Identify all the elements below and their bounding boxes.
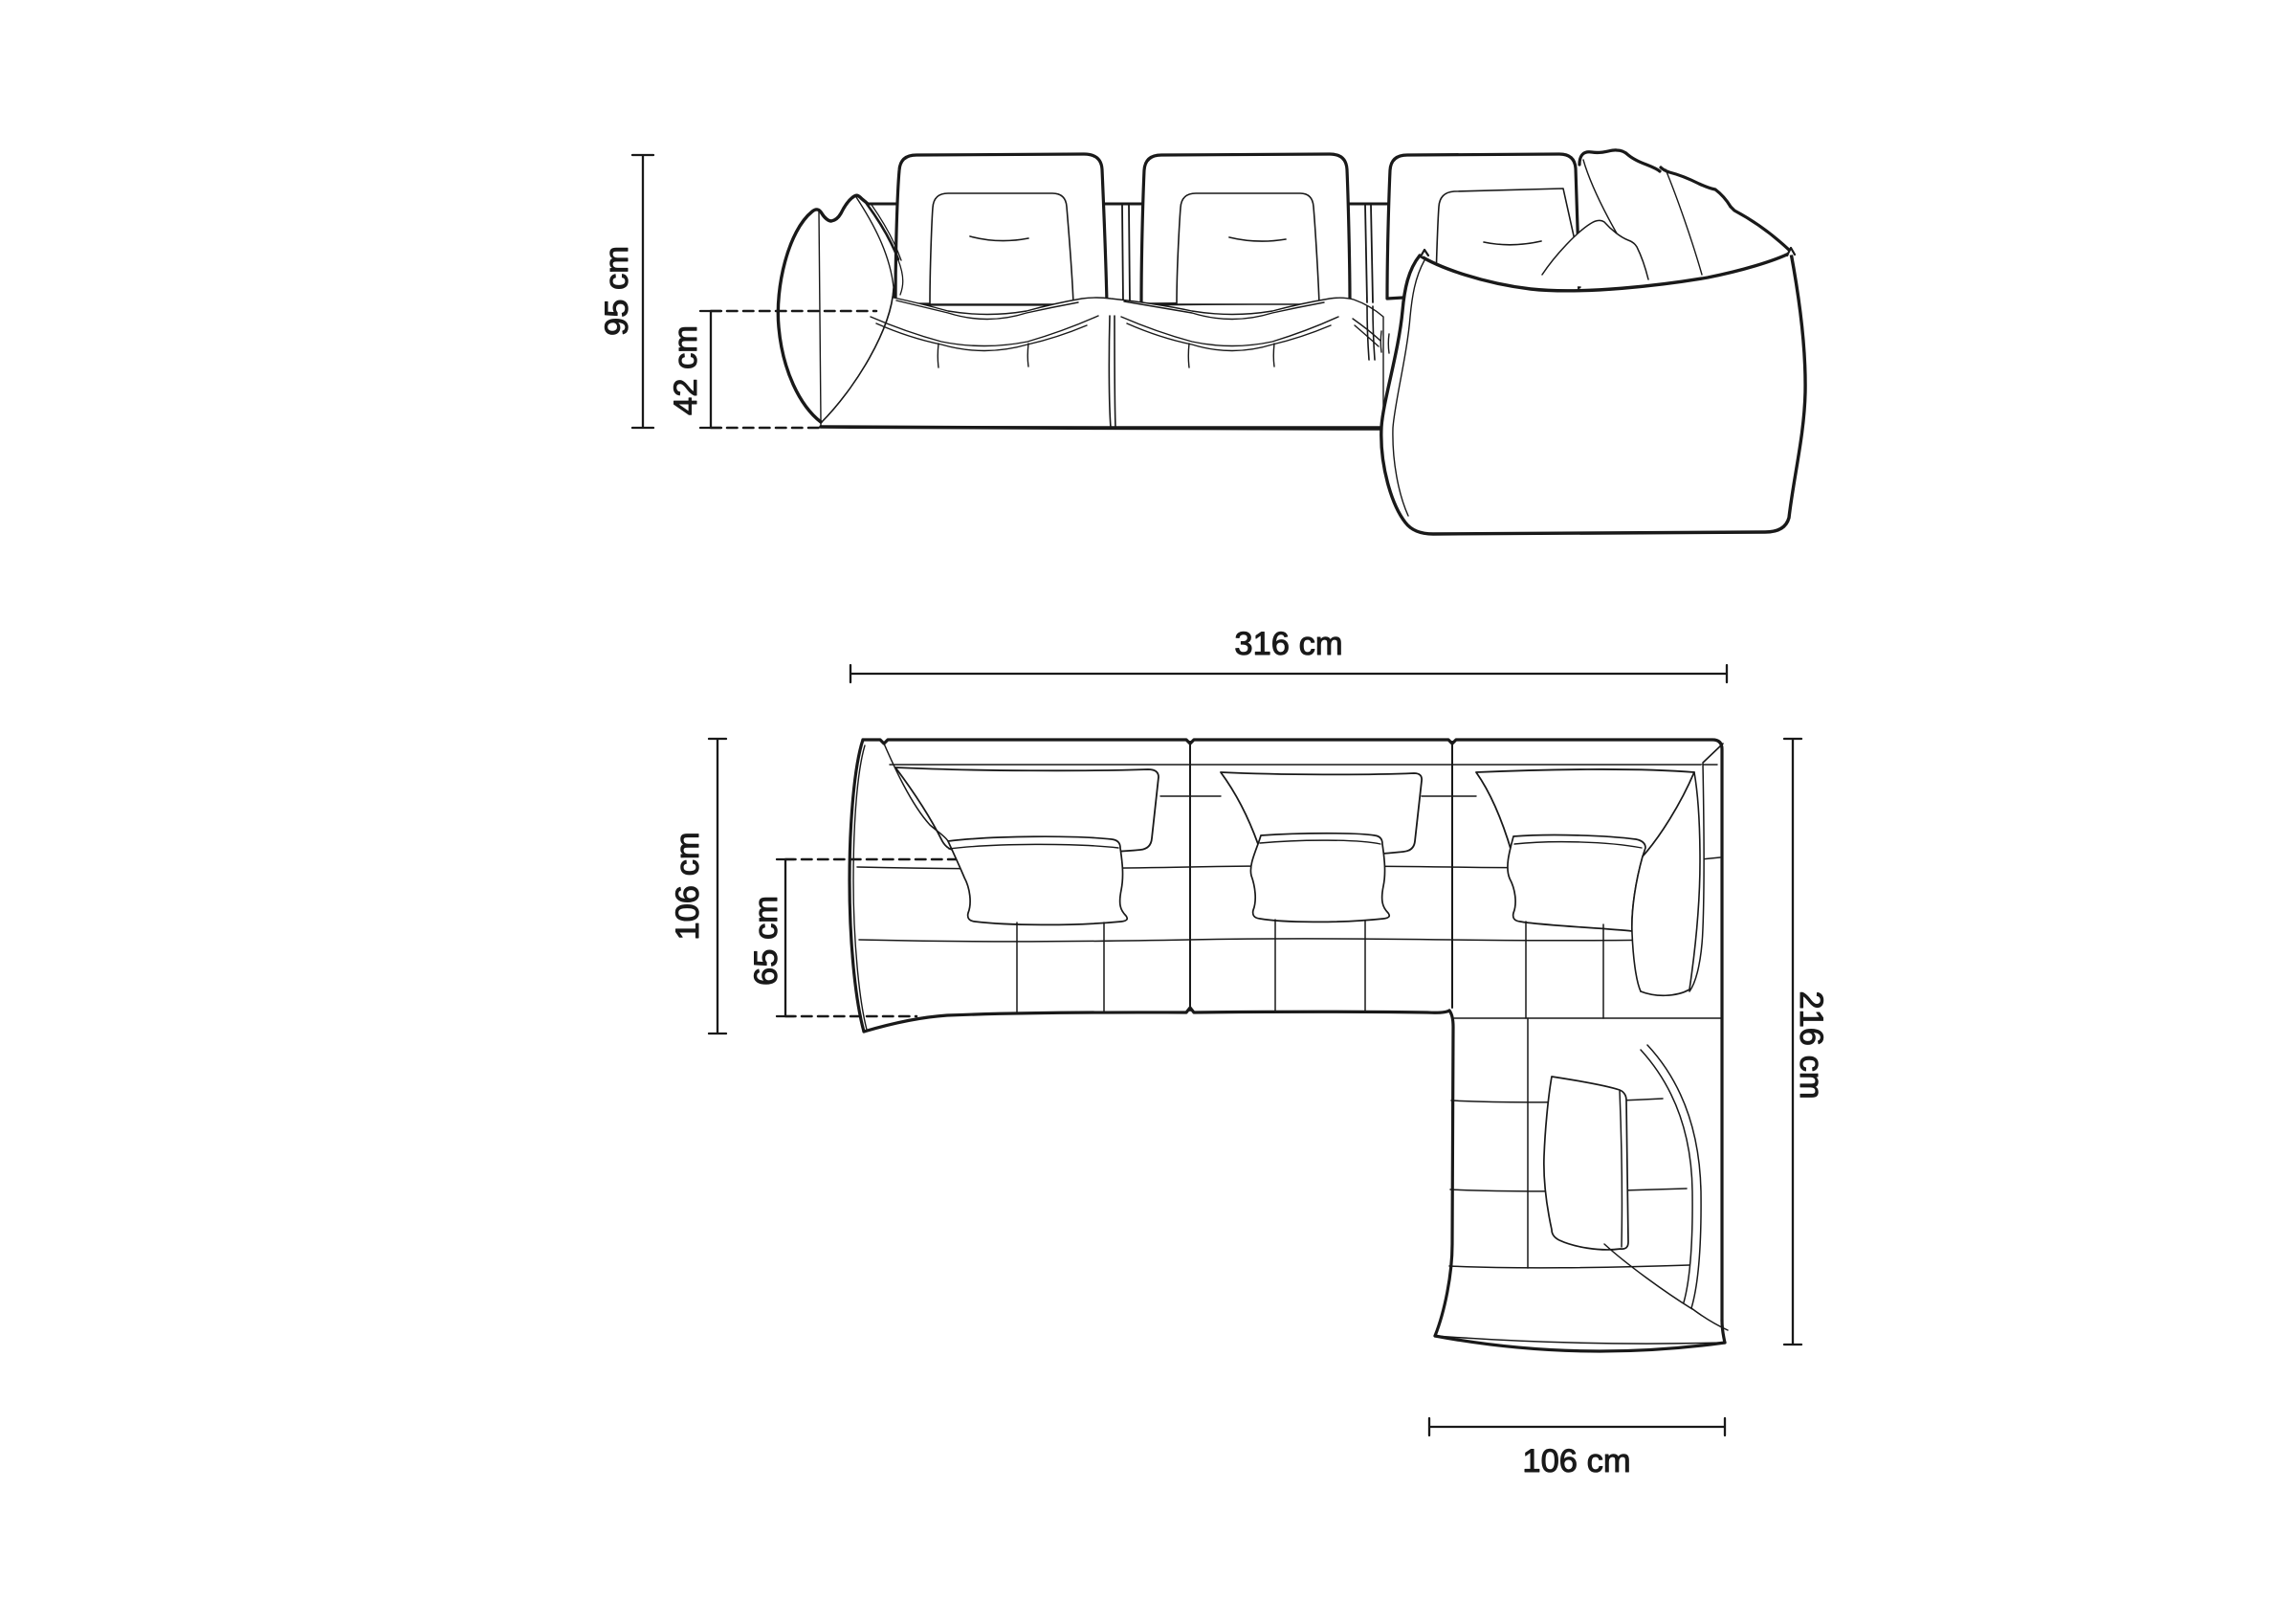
svg-text:106 cm: 106 cm: [1522, 1443, 1630, 1479]
svg-text:42 cm: 42 cm: [668, 325, 704, 415]
svg-text:65 cm: 65 cm: [748, 896, 784, 986]
svg-text:106 cm: 106 cm: [670, 832, 706, 940]
svg-text:316 cm: 316 cm: [1234, 626, 1342, 662]
svg-text:216 cm: 216 cm: [1793, 990, 1829, 1099]
svg-text:95 cm: 95 cm: [599, 246, 635, 336]
